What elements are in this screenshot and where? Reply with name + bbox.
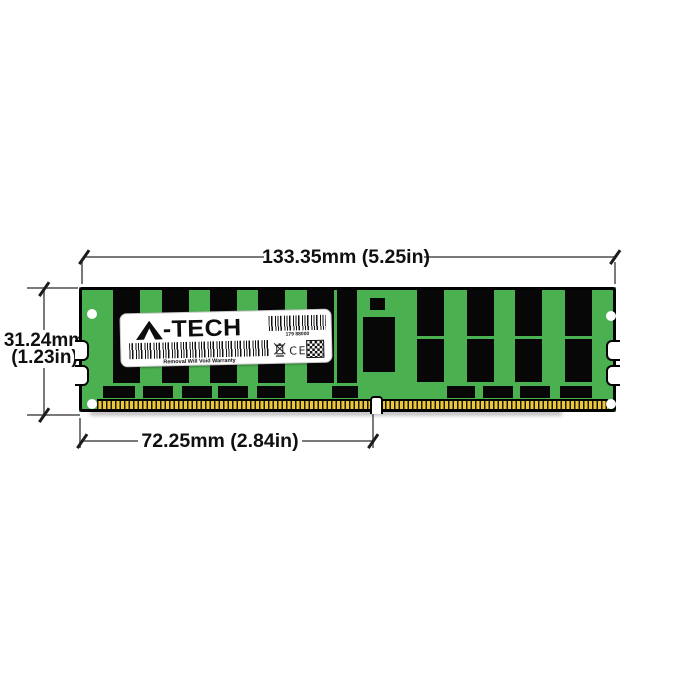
extension-line xyxy=(81,262,83,284)
product-image: 133.35mm (5.25in) 31.24mm (1.23in) 72.25… xyxy=(0,0,700,700)
mounting-hole xyxy=(606,311,616,321)
a-tech-triangle-a-icon xyxy=(136,320,163,340)
qr-code-icon xyxy=(306,340,324,358)
mounting-hole xyxy=(87,399,97,409)
height-in: (1.23in) xyxy=(11,347,78,368)
dimension-line xyxy=(83,256,264,258)
dimension-line xyxy=(424,256,616,258)
pin-span-dimension-text: 72.25mm (2.84in) xyxy=(138,430,302,453)
dimension-line xyxy=(43,368,45,416)
key-notch xyxy=(370,396,383,414)
width-dimension-text: 133.35mm (5.25in) xyxy=(262,246,426,269)
dimension-line xyxy=(302,440,374,442)
edge-notch xyxy=(75,340,89,361)
mounting-hole xyxy=(87,309,97,319)
atech-label: -TECH 179 88000 Removal Will Void Warran… xyxy=(119,309,332,368)
atech-logo: -TECH xyxy=(136,319,242,340)
memory-module: -TECH 179 88000 Removal Will Void Warran… xyxy=(79,287,616,412)
extension-line xyxy=(27,287,78,289)
ce-mark: CE xyxy=(289,344,307,357)
weee-bin-icon xyxy=(273,341,286,357)
extension-line xyxy=(614,262,616,284)
edge-notch xyxy=(75,365,89,386)
edge-notch xyxy=(606,340,620,361)
serial-number: 179 88000 xyxy=(269,331,326,338)
warranty-barcode xyxy=(129,340,269,359)
edge-notch xyxy=(606,365,620,386)
extension-line xyxy=(27,414,80,416)
dimension-line xyxy=(81,440,138,442)
mounting-hole xyxy=(606,399,616,409)
dimension-line xyxy=(43,289,45,330)
serial-barcode xyxy=(269,315,326,331)
logo-text: -TECH xyxy=(163,319,242,339)
